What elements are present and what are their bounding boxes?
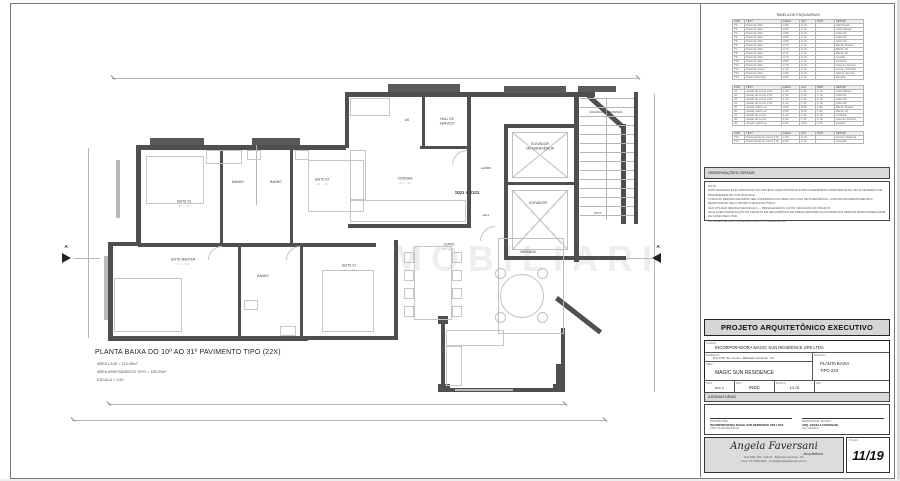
plan-area-laje: ÁREA LAJE = 213,98m²	[97, 362, 138, 366]
title-block: TABELA DE ESQUADRIAS CODTIPOLARG.ALT.PEI…	[701, 3, 893, 477]
plan-area-apto: ÁREA APARTAMENTO TIPO = 185,33m²	[97, 370, 166, 374]
room-label-hall: HALL	[483, 214, 490, 218]
address-value: Rua 3700, 99 - Centro - Balneário Cambor…	[713, 356, 774, 360]
architect-contact: Fone: (47) 3360-0000 - contato@angelafav…	[705, 460, 843, 464]
room-label-suite01: SUITE 01A = ··,··m²	[342, 264, 356, 272]
sheet-number-label: FOLHA	[849, 439, 858, 442]
plan-escala: ESCALA = 1:50	[97, 378, 124, 382]
drawing-sheet: MOBILIARI	[0, 0, 900, 481]
obra-value: MAGIC SUN RESIDENCE	[715, 370, 774, 376]
room-label-suite02: SUITE 02A = ··,··m²	[315, 178, 329, 186]
room-label-duto: DUTO	[594, 212, 602, 216]
observacoes-text: NOTA:ESTE DESENHO É DE APROVAÇÃO DO PROJ…	[704, 181, 890, 221]
room-label-cozinha: COZINHAA = ··,··m²	[398, 177, 413, 185]
section-marker-left	[62, 253, 71, 263]
signature-proprietario: PROPRIETÁRIO INCORPORADORA MAGIC SUN RES…	[705, 405, 797, 434]
room-label-banho-master: BANHO	[257, 275, 269, 279]
room-label-lavabo: LAVABO	[481, 167, 491, 171]
prancha-cell: PRANCHA PLANTA BAIXA TIPO 22X	[813, 353, 889, 380]
esquadrias-title: TABELA DE ESQUADRIAS	[732, 13, 864, 17]
section-marker-right	[652, 253, 661, 263]
observacoes-header: OBSERVAÇÕES GERAIS	[704, 167, 890, 179]
room-label-escada: ESCADA PRESSURIZADA	[590, 111, 623, 115]
room-label-banho-s3: BANHO	[232, 181, 244, 185]
architect-logo-box: Angela Faversani Arquitetura Rua 1500, 5…	[704, 437, 844, 473]
prancha-line2: TIPO 22X	[820, 368, 838, 373]
prancha-label: PRANCHA	[814, 354, 826, 357]
prancha-line1: PLANTA BAIXA	[820, 361, 849, 366]
room-label-hall-servico: HALL DE SERVIÇO	[440, 118, 455, 127]
room-label-suite-master: SUITE MASTERA = ··,··m²	[171, 258, 195, 266]
room-label-varanda: VARANDA	[520, 251, 536, 255]
room-label-banho-s2: BANHO	[270, 181, 282, 185]
obra-label: OBRA	[706, 363, 713, 366]
signature-responsavel: RESPONSÁVEL TÉCNICO ARQ. ANGELA FAVERSAN…	[797, 405, 889, 434]
signatures-box: PROPRIETÁRIO INCORPORADORA MAGIC SUN RES…	[704, 404, 890, 435]
sheet-number-box: FOLHA 11/19	[846, 437, 890, 473]
assinaturas-header: ASSINATURAS	[704, 392, 890, 402]
room-label-elevador: ELEVADOR	[529, 202, 547, 206]
esquadrias-tables: CODTIPOLARG.ALT.PEIT.SETORP1Porta de abr…	[732, 19, 864, 144]
room-label-living: LIVINGA = ··,··m²	[443, 243, 454, 251]
client-row: CLIENTE INCORPORADORA MAGIC SUN RESIDENC…	[705, 341, 889, 353]
client-value: INCORPORADORA MAGIC SUN RESIDENCE SPE LT…	[715, 345, 824, 350]
section-marker-label-right: A	[656, 245, 659, 250]
sheet-number: 11/19	[847, 448, 889, 463]
unit-number-label: 1001 A 3101	[455, 190, 480, 196]
address-row: ENDEREÇO Rua 3700, 99 - Centro - Balneár…	[705, 353, 812, 362]
room-label-as: AS	[405, 119, 409, 123]
section-marker-label-left: A	[64, 245, 67, 250]
project-info-box: CLIENTE INCORPORADORA MAGIC SUN RESIDENC…	[704, 340, 890, 395]
room-label-elev-emergencia: ELEVADOR DE EMERGÊNCIA	[526, 143, 554, 152]
room-label-suite03: SUITE 03A = ··,··m²	[177, 200, 191, 208]
plan-title: PLANTA BAIXA DO 10º AO 31º PAVIMENTO TIP…	[95, 349, 281, 356]
esquadrias-section: TABELA DE ESQUADRIAS CODTIPOLARG.ALT.PEI…	[732, 13, 864, 149]
obra-row: OBRA MAGIC SUN RESIDENCE	[705, 362, 812, 381]
project-header: PROJETO ARQUITETÔNICO EXECUTIVO	[704, 319, 890, 336]
